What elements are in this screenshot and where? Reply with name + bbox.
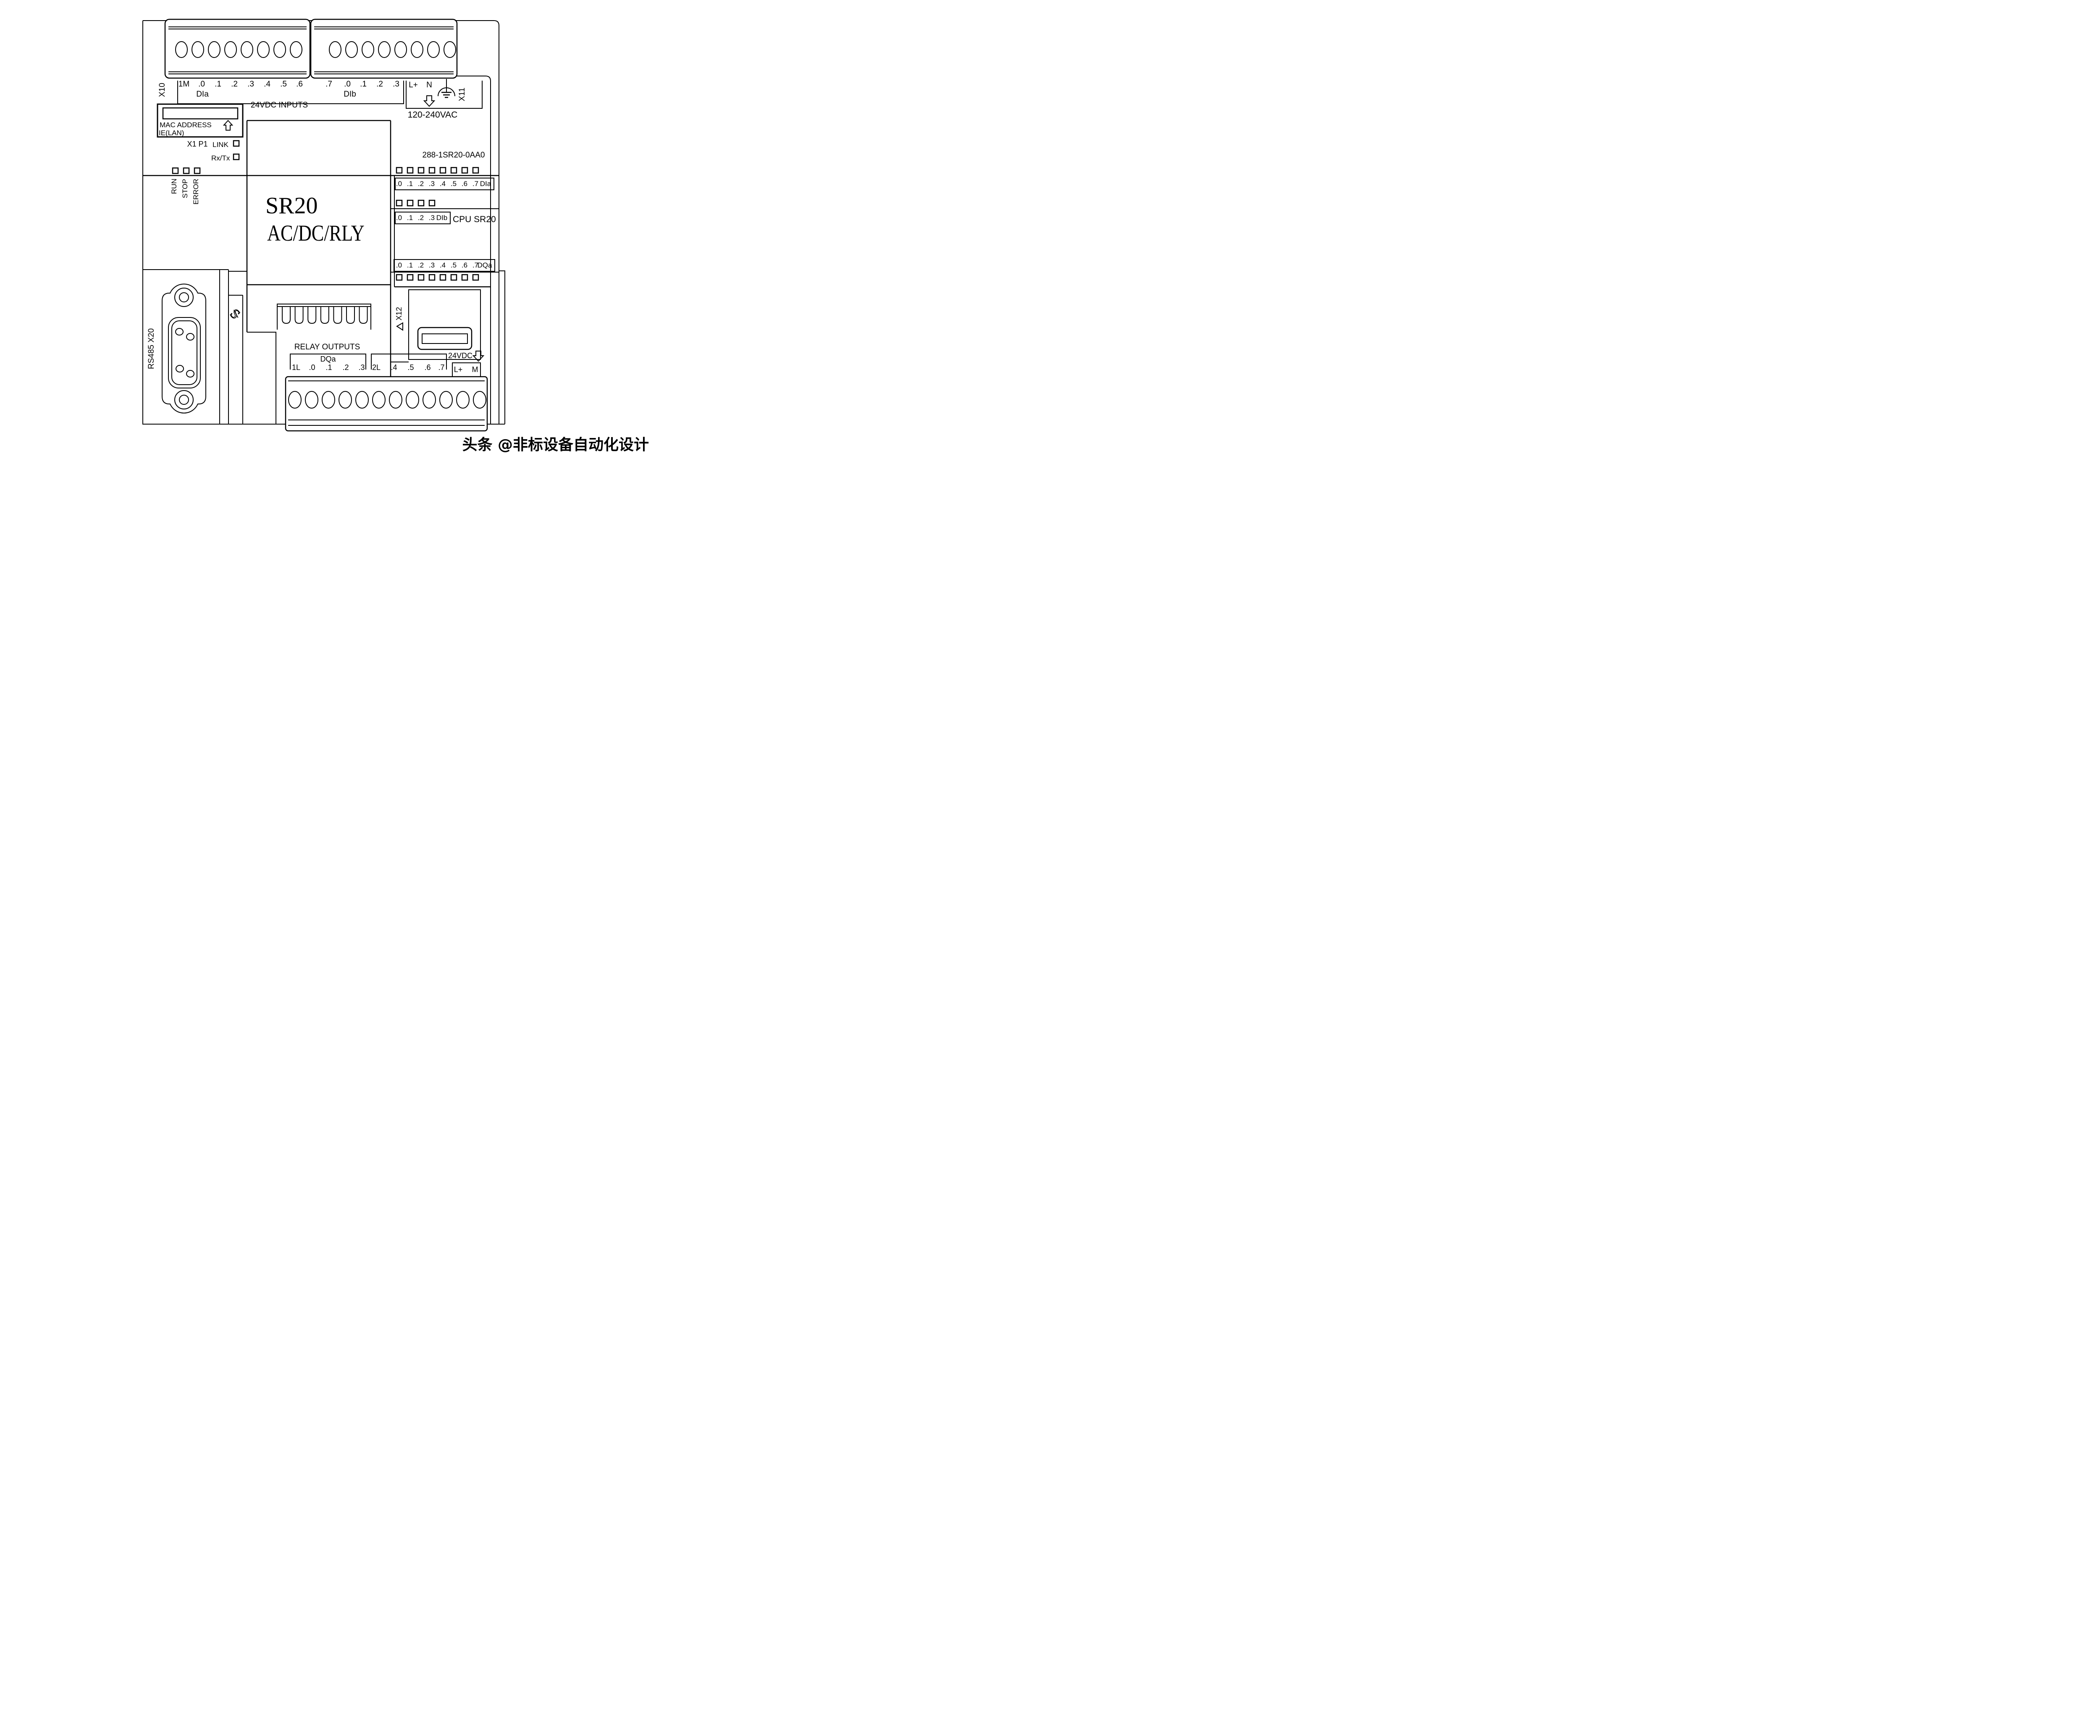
svg-text:S: S — [227, 306, 243, 322]
terminal-label: .1 — [360, 80, 367, 88]
dia-bit: .2 — [418, 180, 424, 187]
terminal-cover-left — [165, 19, 310, 78]
dia-bit: .6 — [462, 180, 467, 187]
output-terminal: .5 — [407, 364, 414, 371]
module-name: SR20 — [265, 194, 318, 218]
dqa-bit: .5 — [451, 262, 457, 269]
output-terminal: .0 — [309, 364, 315, 371]
dqa-led-row — [396, 275, 478, 280]
down-arrow-icon — [424, 96, 434, 106]
model-number: 288-1SR20-0AA0 — [423, 151, 485, 159]
stop-label: STOP — [181, 178, 189, 199]
run-label: RUN — [171, 178, 178, 194]
relay-connector-comb — [277, 304, 371, 330]
dqa-bit: .0 — [396, 262, 402, 269]
dia-bit: .7 — [472, 180, 478, 187]
dib-bit: .2 — [418, 214, 424, 221]
dia-bit: .3 — [429, 180, 435, 187]
dib-bit: .1 — [407, 214, 413, 221]
output-terminal: 1L — [292, 364, 300, 371]
cpu-label: CPU SR20 — [453, 215, 496, 224]
sensor-terminal-m: M — [472, 366, 478, 373]
error-label: ERROR — [192, 178, 199, 205]
power-caption: 120-240VAC — [408, 110, 458, 119]
option-board-slot — [409, 290, 480, 359]
output-terminal: .4 — [391, 364, 397, 371]
x12-port-label: X12 — [395, 305, 403, 322]
dia-bit: .1 — [407, 180, 413, 187]
status-leds — [173, 168, 200, 173]
left-triangle-icon — [397, 323, 403, 330]
dia-led-row — [396, 168, 478, 173]
rs485-connector — [162, 284, 206, 413]
output-terminal: 2L — [372, 364, 381, 371]
protective-earth-icon — [438, 79, 455, 97]
terminal-label: .3 — [393, 80, 399, 88]
ie-lan-label: IE(LAN) — [159, 129, 184, 136]
dqa-bit: .3 — [429, 262, 435, 269]
terminal-label: .7 — [325, 80, 332, 88]
terminal-label: .4 — [264, 80, 270, 88]
outputs-group-name: DQa — [320, 355, 336, 363]
mac-address-label: MAC ADDRESS — [160, 121, 212, 128]
port-x1p1-label: X1 P1 — [187, 140, 207, 148]
up-arrow-icon — [224, 121, 232, 130]
terminal-cover-right — [311, 19, 457, 78]
dia-row-name: DIa — [480, 180, 491, 187]
output-terminal: .1 — [325, 364, 332, 371]
dqa-bit: .1 — [407, 262, 413, 269]
power-terminal-lplus: L+ — [409, 81, 418, 89]
sensor-supply-caption: 24VDC — [448, 352, 472, 359]
rxtx-led — [234, 154, 239, 160]
output-terminal: .2 — [342, 364, 349, 371]
sensor-terminal-lplus: L+ — [454, 366, 463, 373]
power-terminal-n: N — [426, 81, 432, 89]
dqa-bit: .6 — [462, 262, 467, 269]
screw-hole-top — [175, 288, 193, 307]
dib-led-row — [396, 200, 435, 206]
output-terminal: .7 — [438, 364, 444, 371]
dqa-bit: .2 — [418, 262, 424, 269]
output-terminal: .6 — [424, 364, 430, 371]
dia-bit: .5 — [451, 180, 457, 187]
terminal-label: .0 — [344, 80, 351, 88]
terminal-label: .2 — [376, 80, 383, 88]
link-label: LINK — [213, 141, 228, 148]
terminal-label: .6 — [296, 80, 303, 88]
x11-connector-label: X11 — [458, 86, 466, 103]
screw-hole-bottom — [175, 391, 193, 409]
dqa-bit: .4 — [440, 262, 446, 269]
group-label-dib: DIb — [344, 90, 356, 98]
x10-connector-label: X10 — [158, 81, 166, 99]
dib-row-name: DIb — [436, 214, 447, 221]
dia-bit: .4 — [440, 180, 446, 187]
inputs-bracket — [178, 81, 404, 104]
terminal-label: .3 — [247, 80, 254, 88]
watermark: 头条 @非标设备自动化设计 — [462, 438, 649, 453]
terminal-label: .2 — [231, 80, 238, 88]
terminal-label: 1M — [178, 80, 189, 88]
plc-wiring-diagram: S 1M .0 .1 .2 .3 .4 .5 .6 .7 .0 .1 — [0, 0, 654, 462]
relay-outputs-caption: RELAY OUTPUTS — [294, 343, 360, 351]
terminal-label: .1 — [215, 80, 221, 88]
link-led — [234, 141, 239, 146]
inputs-caption: 24VDC INPUTS — [251, 101, 308, 109]
module-type: AC/DC/RLY — [267, 222, 365, 244]
dqa-row-name: DQa — [478, 262, 492, 269]
dsub-female — [168, 317, 200, 388]
rs485-port-label: RS485 X20 — [147, 325, 155, 372]
din-clip-icon: S — [227, 306, 244, 323]
group-label-dia: DIa — [196, 90, 209, 98]
rxtx-label: Rx/Tx — [211, 155, 230, 162]
dib-bit: .0 — [396, 214, 402, 221]
dia-bit: .0 — [396, 180, 402, 187]
dib-bit: .3 — [429, 214, 435, 221]
terminal-label: .5 — [280, 80, 287, 88]
output-terminal: .3 — [358, 364, 365, 371]
bottom-terminal-block — [286, 377, 487, 431]
terminal-label: .0 — [198, 80, 205, 88]
